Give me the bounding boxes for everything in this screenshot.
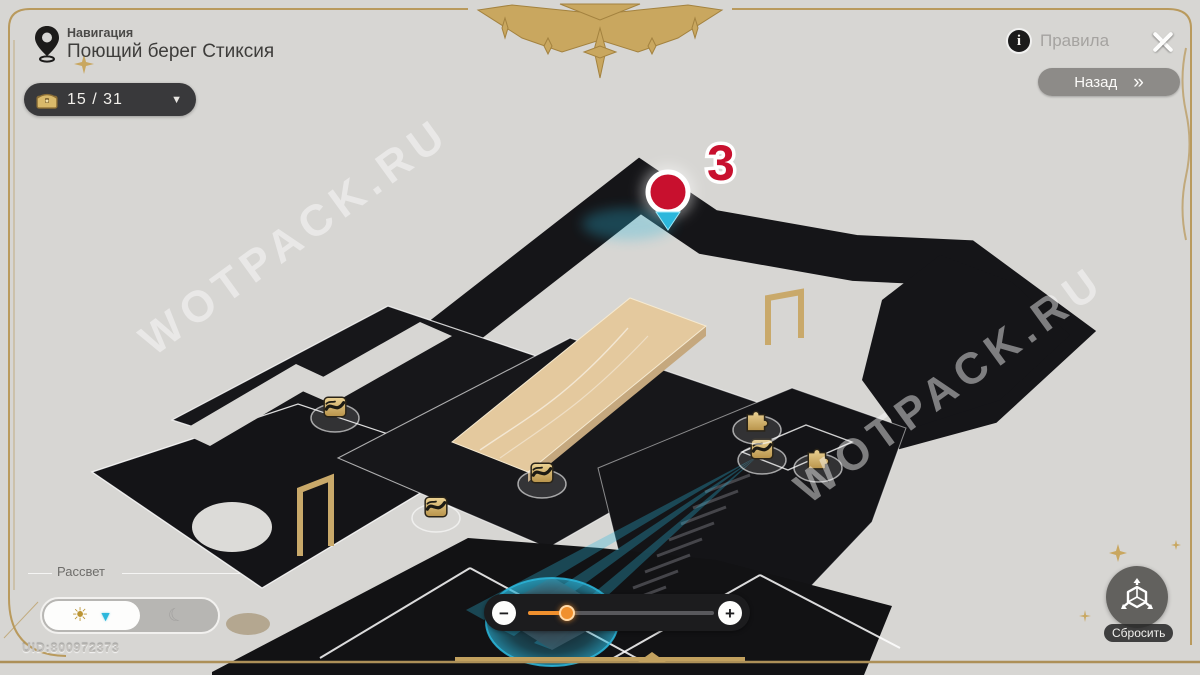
- chevron-right-icon: »: [1133, 73, 1144, 92]
- marker-number: 3: [707, 135, 735, 191]
- chest-icon: [531, 463, 553, 483]
- day-night-toggle[interactable]: ☀ ▼ ☾: [40, 597, 220, 634]
- puzzle-icon: [808, 449, 829, 469]
- rules-label: Правила: [1040, 31, 1109, 51]
- close-button[interactable]: [1148, 27, 1178, 57]
- back-label: Назад: [1074, 74, 1117, 91]
- moon-icon[interactable]: ☾: [165, 603, 187, 628]
- nav-label: Навигация: [67, 26, 133, 40]
- reset-view-button[interactable]: [1106, 566, 1168, 628]
- chest-counter-value: 15 / 31: [67, 91, 123, 109]
- chest-icon: [324, 397, 346, 417]
- zoom-track[interactable]: [528, 611, 714, 615]
- sun-icon: ☀: [72, 606, 89, 625]
- chest-icon: [36, 91, 58, 109]
- divider: [28, 573, 52, 574]
- cube-axes-icon: [1117, 577, 1157, 617]
- chevron-down-icon: ▼: [171, 94, 182, 106]
- doorway-top: [768, 292, 801, 345]
- divider: [122, 573, 240, 574]
- zoom-handle[interactable]: [559, 605, 575, 621]
- page-title: Поющий берег Стиксия: [67, 41, 274, 63]
- teleport-circle[interactable]: [192, 502, 272, 552]
- day-segment[interactable]: ☀ ▼: [44, 601, 140, 630]
- back-button[interactable]: Назад »: [1038, 68, 1180, 96]
- zoom-out-button[interactable]: −: [492, 601, 516, 625]
- zoom-in-button[interactable]: +: [718, 601, 742, 625]
- chest-icon: [425, 497, 447, 517]
- info-icon: i: [1008, 30, 1030, 52]
- time-of-day-label: Рассвет: [57, 564, 105, 579]
- puzzle-icon: [747, 411, 768, 431]
- rules-button[interactable]: i Правила: [1008, 30, 1109, 52]
- reset-view-label: Сбросить: [1104, 624, 1173, 642]
- location-pin-icon: [32, 25, 62, 63]
- uid-text: UID:800972373: [22, 641, 120, 655]
- chest-counter-dropdown[interactable]: 15 / 31 ▼: [24, 83, 196, 116]
- map-gold-blob: [226, 613, 270, 635]
- selected-arrow-icon: ▼: [99, 609, 113, 623]
- map-zoom-slider[interactable]: − +: [484, 594, 750, 631]
